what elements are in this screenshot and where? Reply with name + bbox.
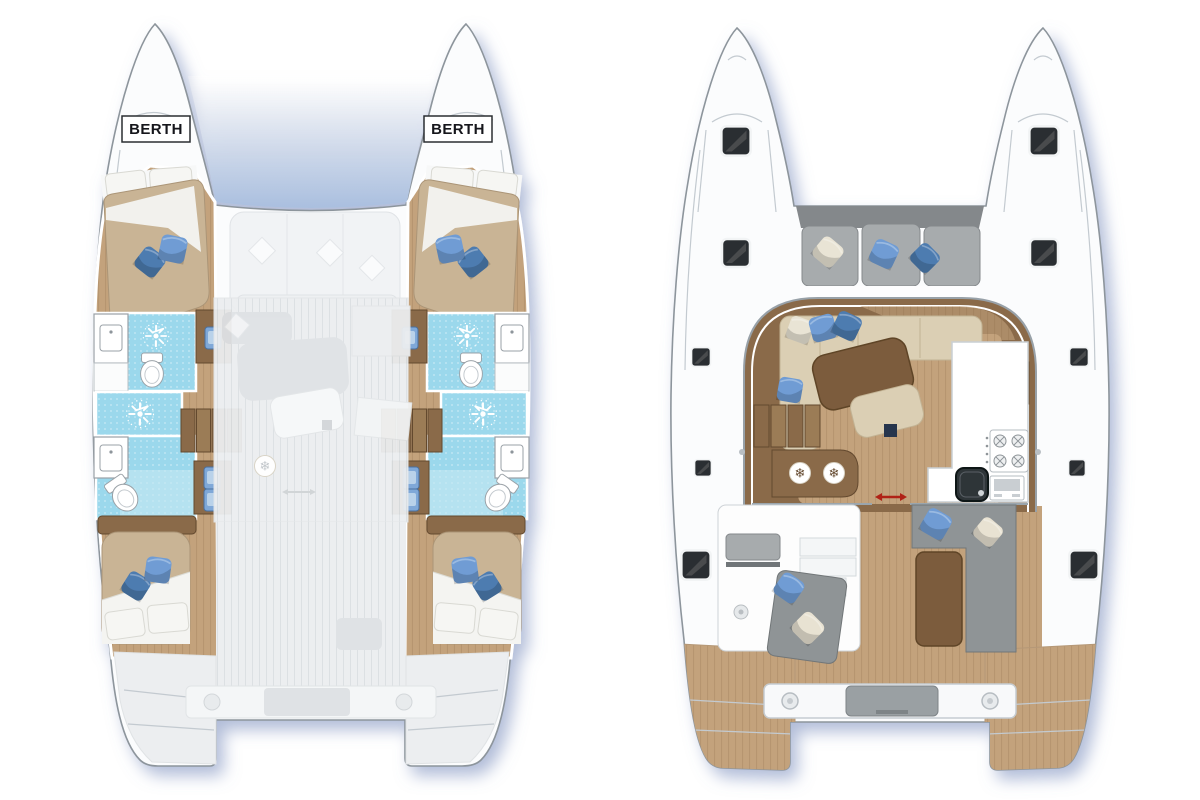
fridge-counter bbox=[772, 450, 858, 497]
lower-deck-plan: BERTH BERTH bbox=[93, 24, 529, 766]
snowflake-fridge-icon bbox=[255, 456, 276, 477]
cockpit-port-module bbox=[718, 505, 860, 664]
deck-hatch-icon bbox=[1069, 550, 1098, 579]
deck-hatch-icon bbox=[681, 550, 710, 579]
deck-hatch-icon bbox=[1069, 347, 1088, 366]
deck-hatch-icon bbox=[722, 239, 750, 267]
mooring-ring-icon bbox=[982, 693, 998, 709]
table-pedestal bbox=[884, 424, 897, 437]
berth-label-text: BERTH bbox=[431, 121, 485, 138]
deck-hatch-icon bbox=[1030, 239, 1058, 267]
saloon bbox=[744, 298, 1036, 512]
cockpit-table bbox=[916, 552, 962, 646]
deck-hatch-icon bbox=[1069, 460, 1086, 477]
berth-label-starboard: BERTH bbox=[424, 116, 492, 142]
forward-cockpit-seating bbox=[796, 206, 984, 300]
mooring-ring-icon bbox=[782, 693, 798, 709]
deck-hatch-icon bbox=[695, 460, 712, 477]
canvas: ❄ bbox=[0, 0, 1200, 800]
saloon-ghost bbox=[214, 298, 412, 522]
berth-label-port: BERTH bbox=[122, 116, 190, 142]
deck-hatch-icon bbox=[1029, 126, 1058, 155]
main-deck-plan bbox=[671, 28, 1109, 772]
berth-label-text: BERTH bbox=[129, 121, 183, 138]
deck-hatch-icon bbox=[721, 126, 750, 155]
galley-sink-icon bbox=[956, 468, 988, 501]
deck-hatch-icon bbox=[691, 347, 710, 366]
stove-burners-icon bbox=[986, 430, 1028, 472]
transom-beam bbox=[764, 684, 1016, 718]
trampoline bbox=[188, 76, 435, 208]
oven-icon bbox=[990, 476, 1024, 500]
pillow-icon bbox=[776, 376, 804, 404]
snowflake-fridge-icon bbox=[824, 463, 845, 484]
snowflake-fridge-icon bbox=[790, 463, 811, 484]
